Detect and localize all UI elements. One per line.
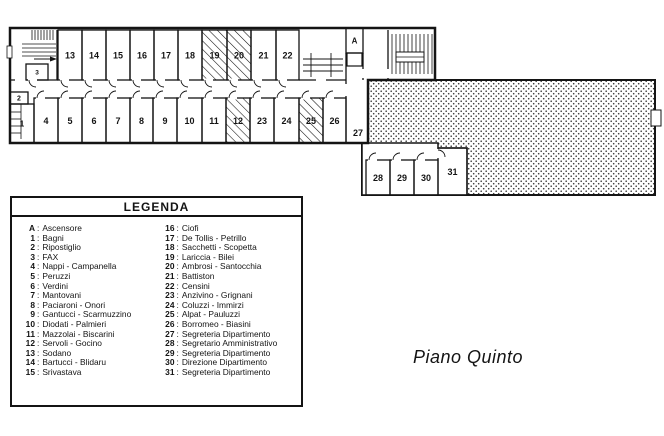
room-20: 20: [227, 30, 251, 87]
legend-item-21: 21:Battiston: [160, 272, 300, 282]
room-label: 4: [43, 116, 48, 126]
legend: LEGENDA A:Ascensore1:Bagni2:Ripostiglio3…: [10, 196, 303, 407]
room-label: 23: [257, 116, 267, 126]
room-label: 6: [91, 116, 96, 126]
room-label: 11: [209, 116, 219, 126]
room-label: 28: [373, 173, 383, 183]
room-label: 19: [209, 50, 219, 60]
room-12: 12: [226, 91, 250, 143]
legend-item-15: 15:Srivastava: [20, 368, 160, 378]
room-label: 21: [258, 50, 268, 60]
legend-item-6: 6:Verdini: [20, 282, 160, 292]
room-label: 13: [65, 50, 75, 60]
legend-column-right: 16:Ciofi17:De Tollis - Petrillo18:Sacche…: [160, 224, 300, 378]
room-label-27: 27: [353, 128, 363, 138]
window-symbol: [7, 46, 12, 58]
room-25: 25: [299, 91, 323, 143]
legend-item-31: 31:Segreteria Dipartimento: [160, 368, 300, 378]
room-label: 14: [89, 50, 99, 60]
room-label: 5: [67, 116, 72, 126]
room-label: 20: [234, 50, 244, 60]
terrace-door-symbol: [651, 110, 661, 126]
room-label: 17: [161, 50, 171, 60]
room-label: A: [352, 37, 358, 46]
room-label: 1: [20, 120, 25, 129]
room-label: 10: [184, 116, 194, 126]
legend-item-4: 4:Nappi - Campanella: [20, 262, 160, 272]
room-label: 9: [162, 116, 167, 126]
floor-plan-page: 1314151617181920212212345678910111223242…: [0, 0, 664, 436]
room-label: 2: [17, 96, 21, 103]
legend-item-2: 2:Ripostiglio: [20, 243, 160, 253]
room-label: 25: [306, 116, 316, 126]
room-label: 30: [421, 173, 431, 183]
legend-column-left: A:Ascensore1:Bagni2:Ripostiglio3:FAX4:Na…: [20, 224, 160, 378]
room-label: 26: [329, 116, 339, 126]
room-label: 22: [282, 50, 292, 60]
legend-item-12: 12:Servoli - Gocino: [20, 339, 160, 349]
room-label: 24: [281, 116, 291, 126]
room-label: 29: [397, 173, 407, 183]
room-label: 15: [113, 50, 123, 60]
room-label: 8: [139, 116, 144, 126]
room-label: 31: [447, 167, 457, 177]
room-label: 7: [115, 116, 120, 126]
room-label: 3: [35, 69, 39, 76]
room-label: 16: [137, 50, 147, 60]
legend-item-1: 1:Bagni: [20, 234, 160, 244]
room-label: 18: [185, 50, 195, 60]
room-label: 12: [233, 116, 243, 126]
legend-item-5: 5:Peruzzi: [20, 272, 160, 282]
floor-title: Piano Quinto: [413, 347, 523, 368]
room-19: 19: [202, 30, 227, 87]
legend-item-14: 14:Bartucci - Blidaru: [20, 358, 160, 368]
legend-item-A: A:Ascensore: [20, 224, 160, 234]
legend-body: A:Ascensore1:Bagni2:Ripostiglio3:FAX4:Na…: [12, 217, 301, 378]
legend-item-20: 20:Ambrosi - Santocchia: [160, 262, 300, 272]
legend-title: LEGENDA: [12, 198, 301, 217]
